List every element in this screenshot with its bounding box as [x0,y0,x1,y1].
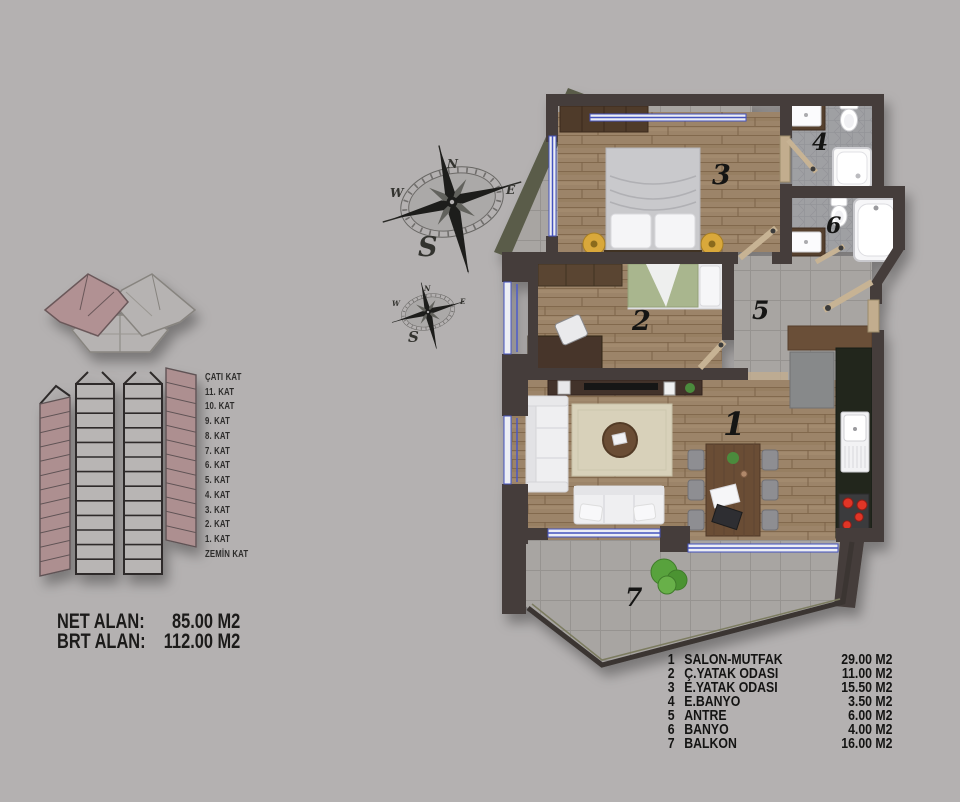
brt-area-label: BRT ALAN: [57,630,141,654]
corner-sofa [526,396,568,492]
floorplan-page: ÇATI KAT 11. KAT 10. KAT 9. KAT 8. KAT 7… [0,0,960,802]
elevation-floor-label: 4. KAT [205,490,230,501]
single-bed [628,260,728,310]
elevation-floor-label: 11. KAT [205,387,234,398]
building-elevation [40,368,196,576]
elevation-floor-label: 3. KAT [205,505,230,516]
brt-area-row: BRT ALAN: 112.00 M2 [57,630,240,654]
compass-east-label: E [506,184,515,196]
elevation-floor-label: 9. KAT [205,416,230,427]
elevation-floor-label: ÇATI KAT [205,372,241,383]
sofa [574,486,664,524]
elevation-floor-label: 8. KAT [205,431,230,442]
kitchen-sink [841,412,869,472]
key-plan [45,274,195,352]
plan-room-number-3: 3 [712,162,731,189]
fridge [790,352,834,408]
plan-room-number-5: 5 [752,298,769,323]
plan-room-number-2: 2 [632,308,651,335]
elevation-floor-label: 7. KAT [205,446,230,457]
plan-room-number-4: 4 [812,131,828,154]
double-bed [604,148,702,258]
compass-north-label: N [424,285,430,292]
plan-room-number-6: 6 [826,215,841,237]
plan-room-number-7: 7 [625,585,642,610]
tv-unit [548,380,702,395]
compass-south-label: S [408,330,419,345]
coffee-table [603,423,637,457]
brt-area-value: 112.00 M2 [141,630,240,654]
elevation-floor-label: 10. KAT [205,401,235,412]
floor-plan [494,88,905,665]
plan-room-number-1: 1 [723,408,745,440]
elevation-floor-label: 1. KAT [205,534,230,545]
bathroom-vanity-sink [787,228,825,256]
compass-east-label: E [460,298,465,305]
elevation-floor-label: ZEMİN KAT [205,549,248,560]
dining-table [688,444,778,536]
compass-west-label: W [392,300,400,307]
legend-room-number: 7 [658,737,684,751]
compass-north-label: N [447,158,458,170]
hall-cabinet [788,326,872,350]
elevation-floor-label: 5. KAT [205,475,230,486]
legend-room-area: 16.00 M2 [814,737,893,751]
elevation-floor-label: 2. KAT [205,519,230,530]
room-legend: 1 SALON-MUTFAK 29.00 M2 2 Ç.YATAK ODASI … [658,653,944,751]
legend-room-name: BALKON [684,737,814,751]
wardrobe [538,264,622,286]
legend-row: 7 BALKON 16.00 M2 [658,737,893,751]
elevation-floor-label: 6. KAT [205,460,230,471]
compass-west-label: W [390,187,403,199]
shower [833,148,871,188]
compass-south-label: S [418,234,438,261]
